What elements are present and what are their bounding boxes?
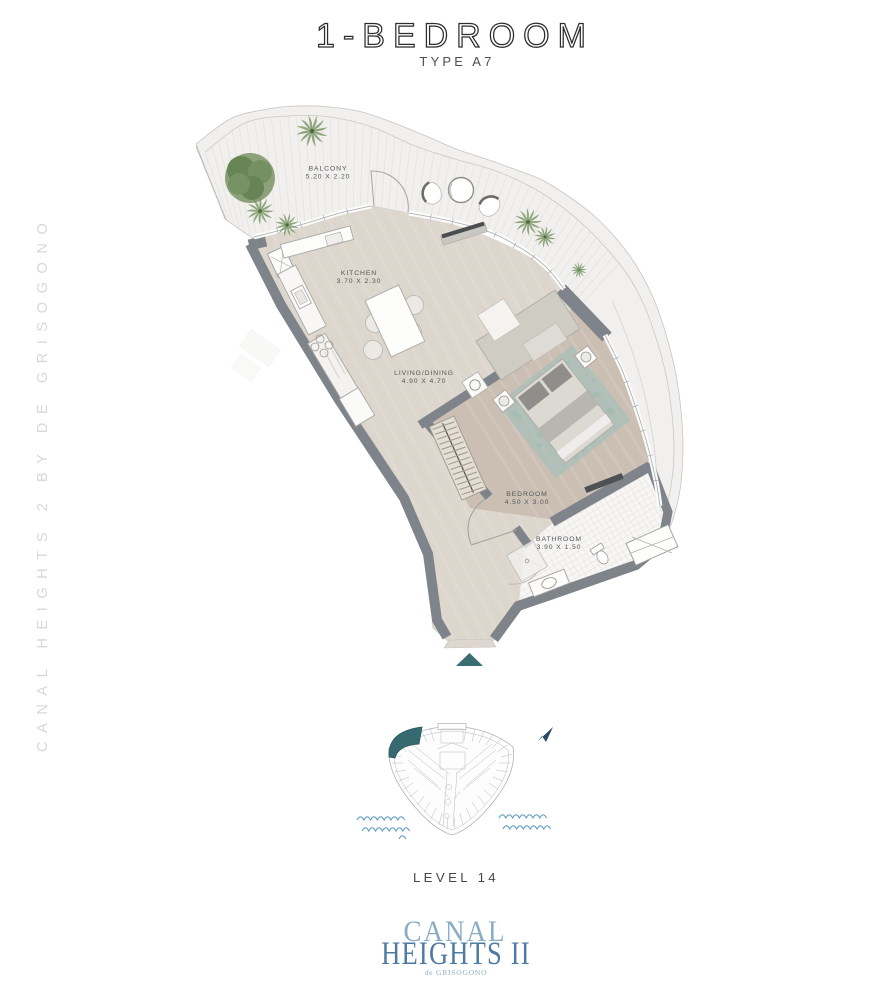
svg-text:5.20 X 2.20: 5.20 X 2.20	[306, 174, 351, 181]
svg-text:LIVING/DINING: LIVING/DINING	[394, 370, 454, 377]
svg-text:3.90 X 1.50: 3.90 X 1.50	[537, 544, 582, 551]
svg-text:4.50 X 3.00: 4.50 X 3.00	[505, 499, 550, 506]
svg-text:4.90 X 4.70: 4.90 X 4.70	[402, 378, 447, 385]
svg-text:KITCHEN: KITCHEN	[341, 270, 377, 277]
svg-text:CANAL HEIGHTS 2 BY DE GRI: CANAL HEIGHTS 2 BY DE GRISOGONO	[35, 215, 51, 752]
svg-text:TYPE A7: TYPE A7	[419, 54, 494, 69]
svg-text:de GRISOGONO: de GRISOGONO	[425, 968, 488, 977]
svg-text:1-BEDROOM: 1-BEDROOM	[316, 17, 594, 55]
svg-text:HEIGHTS II: HEIGHTS II	[381, 935, 531, 971]
svg-text:BALCONY: BALCONY	[309, 166, 348, 173]
svg-text:LEVEL 14: LEVEL 14	[413, 870, 499, 885]
svg-text:BEDROOM: BEDROOM	[506, 491, 547, 498]
svg-text:3.70 X 2.30: 3.70 X 2.30	[337, 278, 382, 285]
svg-text:BATHROOM: BATHROOM	[536, 536, 582, 543]
